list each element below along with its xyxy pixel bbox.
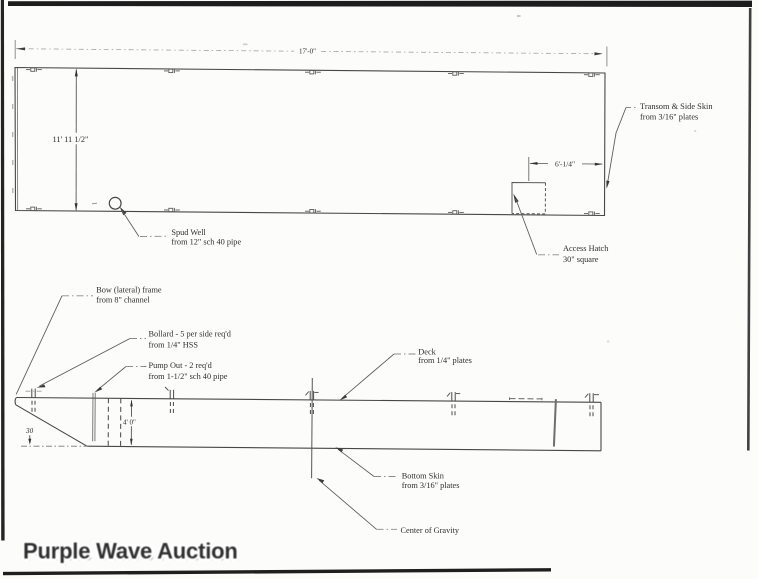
svg-text:4' 0": 4' 0" xyxy=(123,419,136,427)
svg-text:Access Hatch: Access Hatch xyxy=(563,244,609,253)
svg-text:11' 11 1/2": 11' 11 1/2" xyxy=(53,135,89,144)
svg-text:from 3/16" plates: from 3/16" plates xyxy=(402,481,460,490)
svg-text:Bow (lateral) frame: Bow (lateral) frame xyxy=(96,285,162,294)
svg-text:from 1/4" HSS: from 1/4" HSS xyxy=(149,340,199,349)
svg-text:Bollard - 5 per side req'd: Bollard - 5 per side req'd xyxy=(149,330,232,339)
svg-text:Pump Out - 2 req'd: Pump Out - 2 req'd xyxy=(149,361,213,370)
svg-text:Spud Well: Spud Well xyxy=(171,228,206,237)
svg-text:Center of Gravity: Center of Gravity xyxy=(401,526,460,535)
svg-text:Bottom Skin: Bottom Skin xyxy=(402,471,445,480)
svg-text:from 1/4" plates: from 1/4" plates xyxy=(418,356,472,365)
svg-text:6'-1/4": 6'-1/4" xyxy=(555,160,575,169)
svg-text:from 1-1/2" sch 40 pipe: from 1-1/2" sch 40 pipe xyxy=(149,372,228,381)
svg-text:Deck: Deck xyxy=(418,347,436,356)
svg-text:30: 30 xyxy=(25,427,34,435)
svg-text:Transom & Side Skin: Transom & Side Skin xyxy=(640,102,713,111)
svg-text:from 12" sch 40 pipe: from 12" sch 40 pipe xyxy=(171,237,241,246)
svg-text:Purple Wave Auction: Purple Wave Auction xyxy=(23,538,238,563)
svg-text:30" square: 30" square xyxy=(563,255,599,264)
svg-text:17'-0": 17'-0" xyxy=(299,48,316,56)
svg-text:from 3/16" plates: from 3/16" plates xyxy=(640,113,698,122)
svg-text:from 8" channel: from 8" channel xyxy=(96,295,150,304)
